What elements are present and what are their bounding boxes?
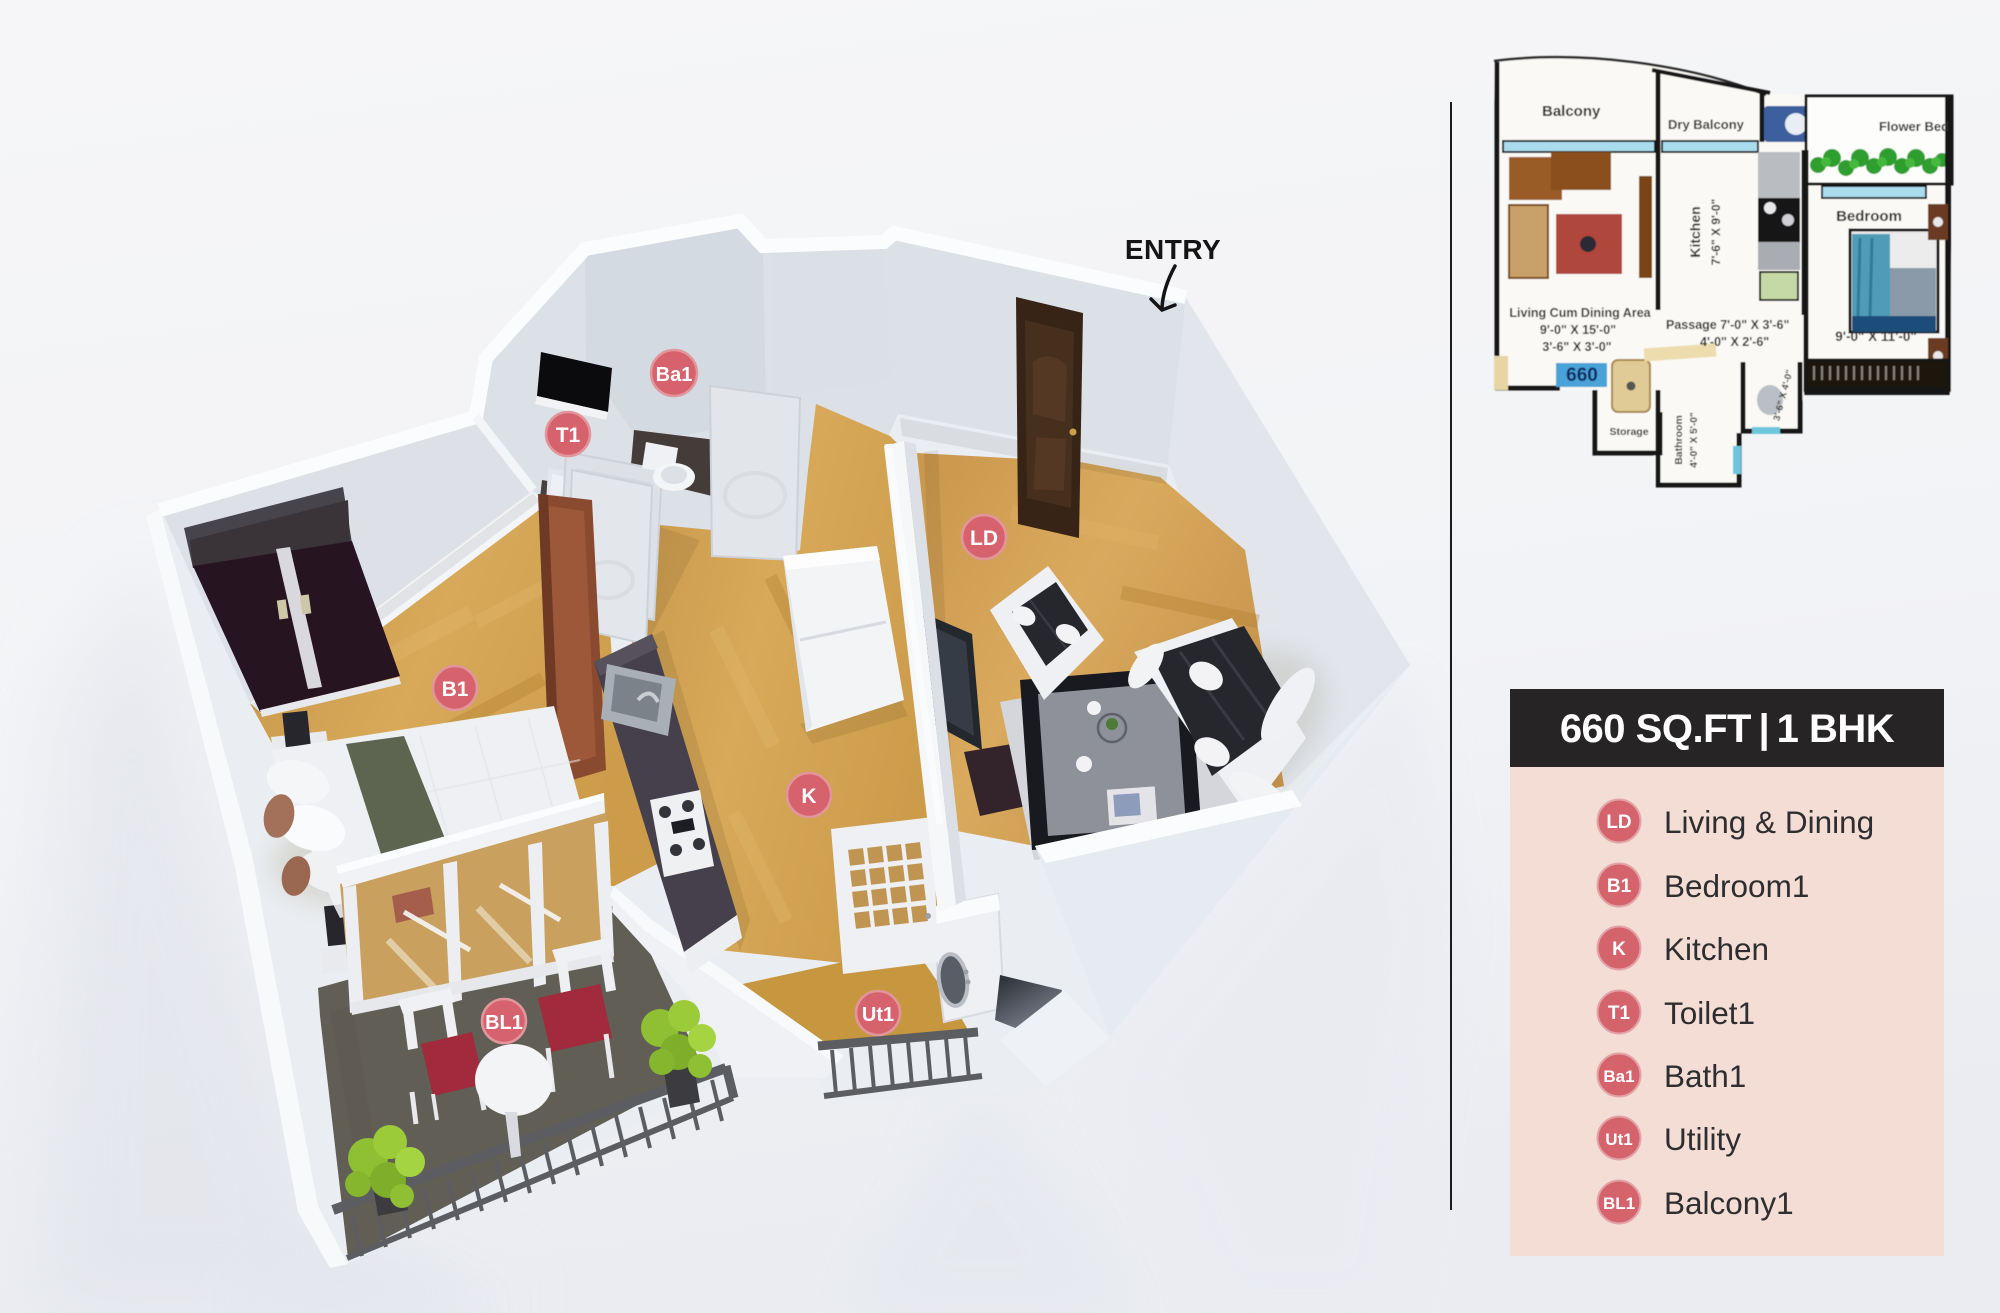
svg-text:B1: B1 (442, 678, 469, 701)
svg-text:Kitchen: Kitchen (1664, 931, 1769, 967)
svg-text:Utility: Utility (1664, 1121, 1741, 1157)
svg-text:K: K (1612, 939, 1626, 960)
svg-text:Bedroom: Bedroom (1836, 208, 1902, 225)
svg-text:Ut1: Ut1 (862, 1004, 894, 1026)
svg-text:Living & Dining: Living & Dining (1664, 804, 1874, 840)
svg-text:Storage: Storage (1609, 426, 1648, 438)
svg-text:LD: LD (970, 527, 998, 550)
svg-text:7'-6" X 9'-0": 7'-6" X 9'-0" (1709, 199, 1723, 265)
svg-text:9'-0" X 15'-0": 9'-0" X 15'-0" (1540, 323, 1616, 337)
svg-text:B1: B1 (1607, 876, 1632, 897)
svg-text:Balcony1: Balcony1 (1664, 1185, 1794, 1221)
svg-text:4'-0" X 2'-6": 4'-0" X 2'-6" (1700, 335, 1769, 349)
svg-text:9'-0" X 11'-0": 9'-0" X 11'-0" (1835, 329, 1917, 344)
svg-text:Toilet1: Toilet1 (1664, 995, 1755, 1031)
svg-text:T1: T1 (1608, 1003, 1631, 1024)
svg-text:Ut1: Ut1 (1605, 1130, 1632, 1149)
svg-text:BL1: BL1 (1603, 1194, 1635, 1213)
svg-text:Flower Bed: Flower Bed (1879, 119, 1949, 134)
svg-text:Bedroom1: Bedroom1 (1664, 868, 1809, 904)
svg-text:Dry Balcony: Dry Balcony (1668, 117, 1745, 132)
svg-text:LD: LD (1606, 812, 1631, 833)
svg-text:T1: T1 (556, 424, 581, 447)
svg-text:4'-0" X 5'-0": 4'-0" X 5'-0" (1689, 412, 1700, 468)
svg-text:660: 660 (1566, 365, 1598, 386)
svg-text:BL1: BL1 (485, 1012, 523, 1034)
svg-text:K: K (801, 785, 816, 808)
svg-text:Ba1: Ba1 (656, 364, 693, 386)
svg-text:Bathroom: Bathroom (1673, 415, 1685, 465)
svg-text:Ba1: Ba1 (1603, 1067, 1634, 1086)
svg-text:Kitchen: Kitchen (1687, 206, 1703, 257)
svg-text:Living Cum Dining Area: Living Cum Dining Area (1509, 306, 1651, 320)
svg-text:Passage 7'-0" X 3'-6": Passage 7'-0" X 3'-6" (1666, 318, 1789, 332)
svg-text:Balcony: Balcony (1542, 103, 1601, 120)
svg-text:660 SQ.FT | 1 BHK: 660 SQ.FT | 1 BHK (1560, 707, 1895, 751)
svg-text:Bath1: Bath1 (1664, 1058, 1746, 1094)
svg-text:3'-6" X 3'-0": 3'-6" X 3'-0" (1542, 340, 1611, 354)
svg-text:ENTRY: ENTRY (1125, 234, 1221, 265)
